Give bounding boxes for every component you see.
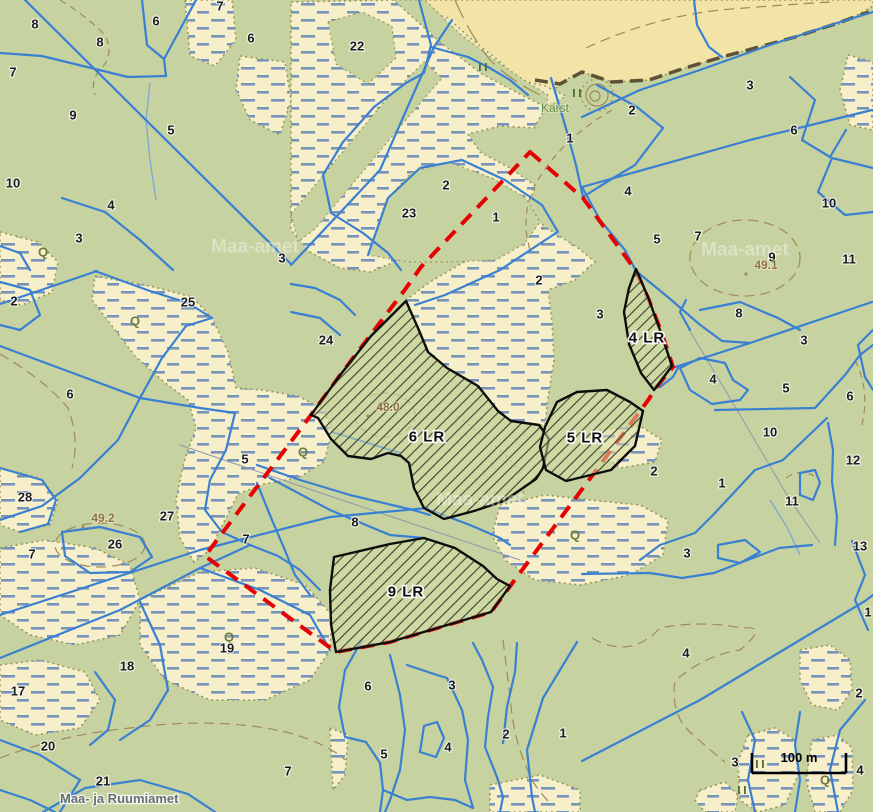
parcel-number-label: 3 (448, 678, 455, 693)
vegetation-symbol (762, 760, 764, 768)
parcel-number-label: 8 (31, 17, 38, 32)
parcel-number-label: 7 (694, 229, 701, 244)
parcel-number-label: 17 (11, 684, 25, 699)
spring-symbol: Q (820, 773, 830, 788)
parcel-number-label: 4 (107, 198, 115, 213)
parcel-number-label: 6 (152, 14, 159, 29)
parcel-number-label: 2 (442, 178, 449, 193)
parcel-number-label: 18 (120, 659, 134, 674)
map-canvas[interactable]: Maa-ametMaa-ametMaa-ametQQQQQQ8876769510… (0, 0, 873, 812)
place-labels: Kärst (541, 101, 570, 115)
stand-label: 4 LR (629, 330, 666, 347)
parcel-number-label: 21 (96, 774, 110, 789)
parcel-number-label: 6 (66, 387, 73, 402)
parcel-number-label: 12 (846, 453, 860, 468)
place-name-label: Kärst (541, 101, 570, 115)
parcel-number-label: 1 (864, 605, 871, 620)
parcel-number-label: 2 (650, 464, 657, 479)
parcel-number-label: 9 (69, 108, 76, 123)
vegetation-symbol (579, 89, 581, 97)
spring-symbol: Q (130, 314, 140, 329)
parcel-number-label: 3 (75, 231, 82, 246)
spring-symbol: Q (570, 528, 580, 543)
parcel-number-label: 24 (319, 333, 334, 348)
parcel-number-label: 5 (380, 747, 387, 762)
parcel-number-label: 5 (782, 381, 789, 396)
parcel-number-label: 7 (28, 547, 35, 562)
stand-label: 9 LR (388, 584, 425, 601)
parcel-number-label: 6 (790, 123, 797, 138)
parcel-number-label: 2 (10, 294, 17, 309)
base-map-svg: Maa-ametMaa-ametMaa-ametQQQQQQ8876769510… (0, 0, 873, 812)
parcel-number-label: 6 (247, 31, 254, 46)
parcel-number-label: 8 (96, 35, 103, 50)
parcel-number-label: 3 (746, 78, 753, 93)
parcel-number-label: 4 (624, 184, 632, 199)
parcel-number-label: 2 (628, 103, 635, 118)
parcel-number-label: 5 (167, 123, 174, 138)
spring-symbol: Q (38, 245, 48, 260)
parcel-number-label: 10 (6, 176, 20, 191)
parcel-number-label: 11 (785, 494, 799, 509)
vegetation-symbol (744, 786, 746, 794)
parcel-number-label: 28 (18, 490, 32, 505)
parcel-number-label: 4 (444, 740, 452, 755)
parcel-number-label: 11 (842, 252, 856, 267)
parcel-number-label: 7 (284, 764, 291, 779)
parcel-number-label: 2 (855, 686, 862, 701)
parcel-number-label: 25 (181, 295, 195, 310)
parcel-number-label: 7 (242, 532, 249, 547)
parcel-number-label: 5 (653, 232, 660, 247)
elevation-label: 49.2 (91, 511, 115, 525)
attribution-text: Maa- ja Ruumiamet (60, 791, 179, 806)
elevation-label: 48.0 (376, 400, 400, 414)
parcel-number-label: 22 (350, 39, 364, 54)
parcel-number-label: 6 (364, 679, 371, 694)
vegetation-symbol (479, 63, 481, 71)
parcel-number-label: 13 (853, 539, 867, 554)
parcel-number-label: 27 (160, 509, 174, 524)
parcel-number-label: 1 (492, 210, 499, 225)
map-attribution: Maa- ja Ruumiamet (60, 791, 179, 806)
scale-bar-label: 100 m (781, 750, 818, 765)
parcel-number-label: 3 (731, 755, 738, 770)
parcel-number-label: 7 (9, 65, 16, 80)
parcel-number-label: 3 (683, 546, 690, 561)
vegetation-symbol (573, 89, 575, 97)
parcel-number-label: 3 (278, 251, 285, 266)
parcel-number-label: 23 (402, 206, 416, 221)
parcel-number-label: 1 (566, 131, 573, 146)
spring-symbol: Q (298, 445, 308, 460)
vegetation-symbol (738, 786, 740, 794)
parcel-number-label: 3 (800, 333, 807, 348)
stand-label: 5 LR (567, 430, 604, 447)
parcel-number-label: 20 (41, 739, 55, 754)
parcel-number-label: 19 (220, 641, 234, 656)
parcel-number-label: 26 (108, 537, 122, 552)
parcel-number-label: 6 (846, 389, 853, 404)
vegetation-symbol (756, 760, 758, 768)
parcel-number-label: 4 (682, 646, 690, 661)
elevation-label: 49.1 (754, 258, 778, 272)
parcel-number-label: 2 (535, 273, 542, 288)
watermark-text: Maa-amet (436, 490, 524, 511)
parcel-number-label: 2 (502, 727, 509, 742)
parcel-number-label: 10 (763, 425, 777, 440)
watermark-text: Maa-amet (211, 237, 299, 258)
parcel-number-label: 4 (709, 372, 717, 387)
stand-label: 6 LR (409, 429, 446, 446)
parcel-number-label: 7 (216, 0, 223, 14)
parcel-number-label: 10 (822, 196, 836, 211)
vegetation-symbol (485, 63, 487, 71)
parcel-number-label: 1 (559, 726, 566, 741)
parcel-number-label: 5 (241, 452, 248, 467)
parcel-number-label: 8 (351, 515, 358, 530)
parcel-number-label: 3 (596, 307, 603, 322)
parcel-number-label: 4 (856, 763, 864, 778)
parcel-number-label: 1 (718, 476, 725, 491)
parcel-number-label: 8 (735, 306, 742, 321)
